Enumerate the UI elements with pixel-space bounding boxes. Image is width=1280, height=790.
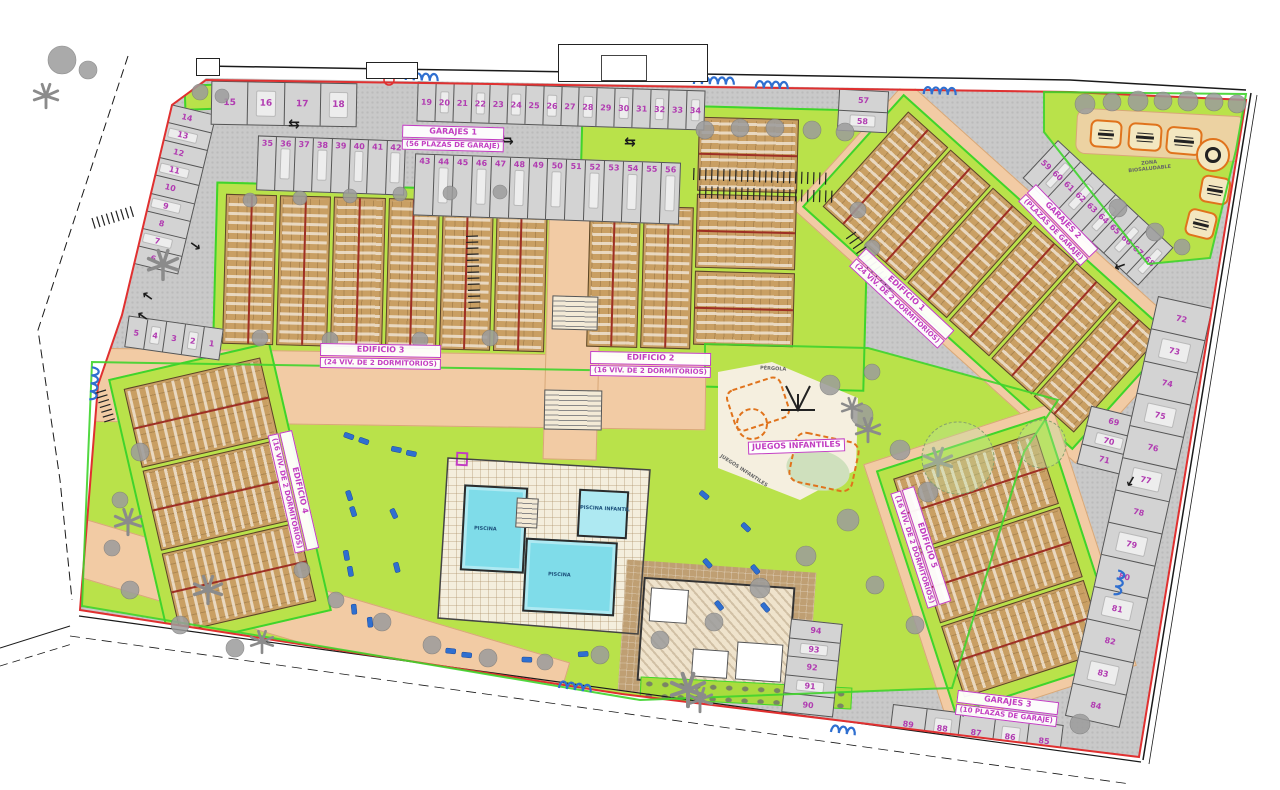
parking-stall-46: 46	[470, 156, 491, 217]
parking-stall-number: 2	[189, 336, 196, 346]
parking-stall-number: 38	[317, 140, 328, 149]
existing-structure	[558, 44, 708, 82]
parking-stall-number: 94	[810, 626, 822, 636]
parking-stall-41: 41	[366, 140, 386, 194]
parking-stall-89: 89	[890, 705, 927, 743]
parking-stall-number: 33	[672, 105, 683, 114]
parking-stall-number: 30	[618, 103, 629, 112]
existing-structure-inner	[601, 55, 647, 81]
parking-stall-number: 11	[168, 165, 181, 176]
clubhouse-room	[691, 648, 729, 678]
parking-stall-number: 77	[1140, 474, 1153, 485]
parking-stall-number: 90	[802, 700, 814, 710]
parking-stall-number: 85	[1038, 736, 1050, 746]
parking-stall-43: 43	[414, 154, 434, 215]
parking-stall-number: 73	[1168, 345, 1181, 356]
parking-stall-number: 81	[1111, 603, 1124, 614]
parking-group-mid-b: 4344454647484950515253545556	[413, 153, 681, 224]
building-name: EDIFICIO 3	[320, 343, 441, 358]
building-name: EDIFICIO 2	[590, 351, 711, 366]
parking-stall-36: 36	[274, 137, 294, 191]
deck-marker	[456, 452, 469, 467]
parking-stall-number: 9	[162, 201, 170, 211]
garage-name: GARAJES 1	[402, 125, 504, 140]
parking-stall-number: 7	[154, 236, 162, 246]
building-unit	[693, 271, 795, 348]
parking-stall-20: 20	[434, 83, 453, 122]
parking-stall-number: 27	[564, 102, 575, 111]
pool-kids	[577, 489, 629, 540]
parking-stall-35: 35	[257, 136, 276, 190]
clubhouse-room	[735, 642, 784, 683]
parking-stall-number: 34	[690, 106, 701, 115]
parking-stall-number: 87	[970, 727, 982, 737]
parking-stall-53: 53	[602, 161, 623, 222]
parking-stall-19: 19	[417, 83, 435, 122]
parking-stall-number: 37	[298, 140, 309, 149]
parking-stall-25: 25	[524, 86, 543, 125]
parking-stall-51: 51	[564, 160, 585, 221]
parking-stall-number: 50	[552, 161, 563, 170]
parking-stall-16: 16	[247, 82, 284, 125]
parking-stall-number: 12	[172, 147, 185, 158]
parking-stall-number: 80	[1118, 571, 1131, 582]
parking-stall-54: 54	[621, 162, 642, 223]
site-area: 14131211109876 54321 15161718 1920212223…	[0, 0, 1280, 790]
parking-stall-number: 24	[510, 100, 521, 109]
gym-table-icon	[1196, 138, 1230, 172]
building-units	[586, 205, 694, 350]
parking-stall-number: 35	[262, 139, 273, 148]
parking-stall-number: 54	[627, 164, 638, 173]
parking-stall-number: 57	[858, 96, 870, 106]
parking-stall-39: 39	[330, 139, 350, 193]
parking-stall-number: 16	[260, 99, 273, 109]
parking-stall-18: 18	[319, 84, 356, 127]
parking-stall-number: 42	[390, 143, 401, 152]
building-unit	[276, 195, 331, 346]
parking-stall-number: 52	[589, 162, 600, 171]
parking-stall-number: 89	[902, 719, 914, 729]
parking-stall-number: 75	[1154, 410, 1167, 421]
label-edificio-3: EDIFICIO 3 (24 VIV. DE 2 DORMITORIOS)	[320, 343, 441, 370]
parking-stall-number: 92	[806, 663, 818, 673]
parking-stall-30: 30	[614, 89, 633, 128]
parking-stall-number: 69	[1107, 416, 1120, 427]
parking-stall-number: 58	[857, 116, 869, 126]
parking-stall-33: 33	[667, 90, 686, 129]
parking-stall-number: 41	[372, 142, 383, 151]
building-edificio-2-wing-a	[586, 205, 694, 350]
parking-stall-number: 3	[171, 333, 178, 343]
parking-stall-number: 74	[1161, 377, 1174, 388]
parking-stall-85: 85	[1025, 722, 1063, 760]
parking-stall-number: 8	[158, 218, 166, 228]
parking-stall-number: 25	[528, 100, 539, 109]
parking-stall-number: 13	[176, 130, 189, 141]
gym-equipment-icon	[1198, 174, 1232, 207]
label-garajes-1: GARAJES 1 (56 PLAZAS DE GARAJE)	[402, 125, 505, 153]
parking-stall-number: 49	[533, 160, 544, 169]
parking-stall-number: 5	[133, 328, 140, 338]
pool-steps	[515, 497, 539, 528]
parking-stall-26: 26	[542, 86, 561, 125]
parking-stall-number: 76	[1147, 442, 1160, 453]
parking-stall-number: 88	[936, 723, 948, 733]
parking-stall-number: 48	[514, 160, 525, 169]
parking-stall-number: 17	[296, 99, 309, 109]
parking-stall-number: 28	[582, 102, 593, 111]
parking-stall-number: 83	[1097, 667, 1110, 678]
parking-stall-52: 52	[583, 160, 604, 221]
parking-stall-15: 15	[212, 82, 248, 125]
parking-stall-number: 6	[149, 254, 157, 264]
parking-stall-number: 23	[493, 99, 504, 108]
parking-stall-21: 21	[452, 84, 471, 123]
walkway-stairs	[552, 295, 599, 330]
parking-stall-55: 55	[640, 162, 661, 223]
gym-equipment-icon	[1127, 122, 1163, 152]
site-plan: 14131211109876 54321 15161718 1920212223…	[0, 0, 1280, 790]
building-unit	[493, 201, 548, 352]
gym-equipment-icon	[1089, 119, 1123, 149]
parking-stall-number: 78	[1132, 506, 1145, 517]
parking-stall-1: 1	[200, 327, 223, 359]
parking-stall-number: 43	[419, 157, 430, 166]
parking-stall-90: 90	[782, 693, 834, 717]
parking-stall-number: 84	[1090, 700, 1103, 711]
parking-stall-number: 91	[804, 681, 816, 691]
building-unit	[222, 194, 277, 345]
parking-stall-28: 28	[578, 88, 597, 127]
parking-stall-40: 40	[348, 140, 368, 194]
parking-stall-56: 56	[659, 163, 680, 224]
parking-stall-number: 53	[608, 163, 619, 172]
parking-stall-44: 44	[432, 155, 453, 216]
building-units-label: (16 VIV. DE 2 DORMITORIOS)	[590, 365, 711, 379]
building-unit	[695, 194, 797, 271]
parking-group-mid-a: 3536373839404142	[256, 135, 406, 195]
parking-stall-number: 82	[1104, 635, 1117, 646]
parking-stall-number: 56	[665, 165, 676, 174]
parking-stall-37: 37	[293, 138, 313, 192]
parking-stall-47: 47	[489, 157, 510, 218]
parking-stall-number: 36	[280, 139, 291, 148]
parking-stall-number: 21	[457, 98, 468, 107]
clubhouse-building	[637, 577, 796, 691]
parking-stall-number: 20	[439, 98, 450, 107]
existing-structure	[366, 62, 418, 79]
parking-group-top-a: 15161718	[211, 81, 358, 128]
parking-stall-number: 29	[600, 103, 611, 112]
parking-stall-number: 26	[546, 101, 557, 110]
existing-structure	[196, 58, 220, 76]
parking-stall-number: 46	[476, 159, 487, 168]
parking-group-bottom-stack: 9493929190	[781, 619, 843, 718]
parking-stall-45: 45	[451, 156, 472, 217]
parking-stall-number: 4	[152, 331, 159, 341]
parking-stall-number: 14	[181, 112, 194, 123]
parking-stall-38: 38	[311, 138, 331, 192]
parking-stall-29: 29	[596, 88, 615, 127]
parking-stall-number: 18	[332, 100, 345, 110]
parking-stall-17: 17	[283, 83, 320, 126]
parking-group-57-58: 5758	[837, 89, 889, 134]
parking-stall-number: 72	[1175, 313, 1188, 324]
building-unit	[385, 198, 440, 349]
parking-stall-number: 31	[636, 104, 647, 113]
building-unit	[640, 206, 694, 349]
parking-stall-number: 39	[335, 141, 346, 150]
parking-stall-number: 51	[570, 162, 581, 171]
parking-stall-number: 22	[475, 99, 486, 108]
parking-stall-34: 34	[685, 91, 704, 130]
clubhouse-room	[649, 587, 689, 624]
parking-stall-number: 47	[495, 159, 506, 168]
building-units-label: (24 VIV. DE 2 DORMITORIOS)	[320, 357, 441, 371]
parking-stall-31: 31	[632, 89, 651, 128]
building-unit	[697, 117, 799, 194]
parking-stall-number: 15	[223, 98, 236, 108]
parking-stall-number: 19	[421, 97, 432, 106]
parking-stall-number: 70	[1102, 435, 1115, 446]
parking-stall-number: 86	[1004, 731, 1016, 741]
pool-label: PISCINA	[474, 525, 497, 532]
label-edificio-2: EDIFICIO 2 (16 VIV. DE 2 DORMITORIOS)	[590, 351, 711, 378]
building-edificio-2-wing-b	[693, 117, 799, 348]
parking-stall-number: 40	[354, 142, 365, 151]
parking-stall-number: 68	[1143, 254, 1157, 268]
parking-stall-27: 27	[560, 87, 579, 126]
walkway-stairs	[544, 389, 603, 430]
parking-stall-48: 48	[508, 158, 529, 219]
parking-stall-23: 23	[488, 85, 507, 124]
parking-stall-number: 1	[208, 338, 215, 348]
parking-stall-number: 55	[646, 164, 657, 173]
parking-stall-57: 57	[839, 90, 888, 112]
parking-stall-number: 79	[1125, 539, 1138, 550]
parking-stall-number: 93	[808, 644, 820, 654]
parking-stall-22: 22	[470, 84, 489, 123]
parking-stall-number: 71	[1098, 454, 1111, 465]
parking-stall-24: 24	[506, 85, 525, 124]
building-unit	[439, 199, 494, 350]
pool-label: PISCINA	[548, 571, 571, 578]
parking-stall-32: 32	[650, 90, 669, 129]
parking-stall-number: 10	[164, 183, 177, 194]
parking-stall-58: 58	[838, 109, 887, 132]
building-unit	[330, 197, 385, 348]
parking-stall-number: 32	[654, 104, 665, 113]
parking-stall-50: 50	[545, 159, 566, 220]
parking-stall-number: 44	[438, 157, 449, 166]
parking-stall-number: 45	[457, 158, 468, 167]
building-units	[693, 117, 799, 348]
parking-stall-49: 49	[526, 158, 547, 219]
